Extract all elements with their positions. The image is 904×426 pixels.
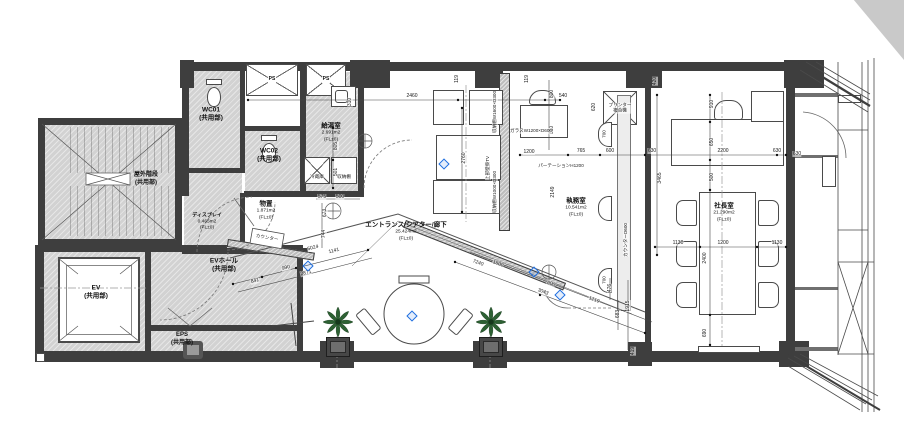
dimension-label: 1200: [717, 240, 729, 246]
dimension-label: 744: [321, 229, 327, 238]
level-marker-icon: [554, 289, 565, 300]
pilaster: [350, 60, 390, 88]
balcony-wall: [795, 287, 838, 290]
dimension-label: 2200: [717, 148, 729, 154]
dimension-label: 3043: [536, 287, 549, 297]
dimension-label: 910: [709, 99, 715, 108]
annotation-label: 収納棚W1000×D300: [492, 171, 498, 213]
dimension-label: 683: [615, 309, 621, 318]
dimension-label: 1130: [771, 240, 783, 246]
wall-right: [786, 62, 795, 364]
dimension-label: 630: [792, 151, 801, 157]
room-label-wc02: WC02(共用部): [257, 148, 281, 165]
adjacent-building-corner: [845, 0, 904, 60]
wall-wc02-top: [244, 126, 306, 131]
dimension-label: 1915: [625, 300, 631, 312]
room-label-kitchenette: 給湯室2.691m2(FL±0): [321, 123, 341, 144]
room-label-ev: EV(共用部): [84, 285, 108, 302]
wall-kitchenette-bottom: [300, 191, 364, 197]
wall-ev-left: [35, 245, 44, 355]
dimension-label: 630: [772, 148, 781, 154]
annotation-label: パーテーションH1200: [538, 163, 584, 169]
room-label-office: 執務室10.541m2(FL±0): [565, 198, 586, 219]
balcony-sill: [838, 95, 861, 103]
level-marker-icon: [406, 310, 417, 321]
dimension-label: 500: [709, 172, 715, 181]
floor-plan: PS PS: [0, 0, 904, 426]
room-label-storage: 物置1.871m2(FL±0): [257, 201, 276, 222]
annotation-label: 700: [602, 276, 607, 284]
dimension-label: 765: [576, 148, 585, 154]
column: [779, 341, 809, 367]
dimension-label: 600: [605, 148, 614, 154]
plant-pot: [326, 337, 350, 357]
pipe-shaft: PS: [246, 64, 298, 96]
room-label-entrance: エントランス/シアター/廊下25.424m2(FL±0): [365, 222, 446, 243]
room-label-wc01: WC01(共用部): [199, 107, 223, 124]
wall-wc-left: [182, 66, 189, 196]
toilet-tank: [206, 79, 222, 85]
meeting-chair: [758, 282, 779, 308]
wall-evhall-right: [297, 245, 303, 355]
meeting-chair: [676, 200, 697, 226]
dimension-label: 420: [652, 76, 658, 85]
dimension-label: 2460: [406, 93, 418, 99]
room-label-eps: EPS(共用部): [171, 332, 193, 348]
plant-pot: [479, 337, 503, 357]
dimension-label: 650: [709, 137, 715, 146]
president-desk: [671, 119, 784, 166]
annotation-label: カウンター: [255, 233, 279, 243]
service-hatch: [36, 353, 45, 362]
meeting-chair: [676, 282, 697, 308]
wall-wc01-bottom: [182, 168, 245, 173]
dimension-label: 5024: [306, 244, 319, 253]
wall-eps-top: [145, 325, 303, 331]
counter-chair: [598, 196, 612, 221]
wall-president-left: [645, 73, 651, 354]
dimension-label: 419: [630, 346, 636, 355]
annotation-label: プリンター複合機: [607, 103, 633, 114]
dimension-label: 2149: [550, 186, 556, 198]
wall-wc-divider: [240, 66, 245, 172]
room-label-outdoor-stair: 屋外階段(共用部): [134, 172, 158, 188]
annotation-label: 収納棚: [337, 174, 351, 180]
dimension-label: 690: [702, 328, 708, 337]
annotation-label: カウンターD600: [623, 223, 629, 257]
dimension-label: 476: [607, 283, 613, 292]
dimension-label: 630: [647, 148, 656, 154]
room-label-president: 社長室21.290m2(FL±0): [713, 203, 734, 224]
annotation-label: 冷蔵庫: [310, 174, 324, 180]
wall-wc02-bottom: [244, 191, 306, 197]
credenza: [698, 346, 760, 353]
dimension-label: 3465: [657, 172, 663, 184]
room-label-display: ディスプレイ0.465m2(FL±0): [192, 213, 222, 232]
room-label-ev-hall: EVホール(共用部): [210, 258, 238, 275]
dimension-label: 1141: [328, 247, 341, 256]
dimension-label: 119: [454, 75, 460, 84]
executive-chair: [714, 100, 743, 120]
work-counter: [617, 95, 631, 311]
wall-kitchenette-right: [358, 66, 364, 197]
dimension-label: 673: [322, 208, 328, 217]
meeting-chair: [758, 200, 779, 226]
theater-sofa: [433, 90, 464, 125]
side-cabinet: [751, 91, 784, 122]
dimension-label: 575: [317, 194, 326, 200]
dimension-label: 620: [591, 102, 597, 111]
ps-label: PS: [268, 77, 277, 83]
dimension-label: 310: [347, 97, 353, 106]
annotation-label: 上部壁掛TV: [485, 156, 491, 180]
ps-label: PS: [322, 77, 331, 83]
toilet: [207, 87, 221, 107]
balcony-wall: [795, 93, 838, 97]
dimension-label: 500: [335, 194, 344, 200]
dimension-label: 540: [558, 93, 567, 99]
outdoor-stair-area: [38, 118, 182, 246]
dimension-label: 2760: [461, 152, 467, 164]
dimension-label: 1130: [672, 240, 684, 246]
dimension-label: 1219: [587, 295, 600, 305]
annotation-label: ガラスW1200×D600: [510, 128, 552, 134]
annotation-label: 700: [602, 130, 607, 138]
balcony-cabinet: [822, 156, 836, 187]
dimension-label: 119: [524, 75, 530, 84]
wall-ev-divider: [145, 245, 151, 355]
toilet-tank: [261, 135, 277, 141]
annotation-label: 収納棚W1600×D300: [492, 91, 498, 133]
dimension-label: 7240: [471, 258, 484, 268]
dimension-label: 800: [549, 89, 555, 98]
dimension-label: 2400: [702, 252, 708, 264]
wall-evhall-top-a: [35, 245, 227, 252]
balcony-wall: [795, 347, 838, 351]
theater-sofa: [433, 180, 500, 214]
dimension-label: 1200: [523, 149, 535, 155]
